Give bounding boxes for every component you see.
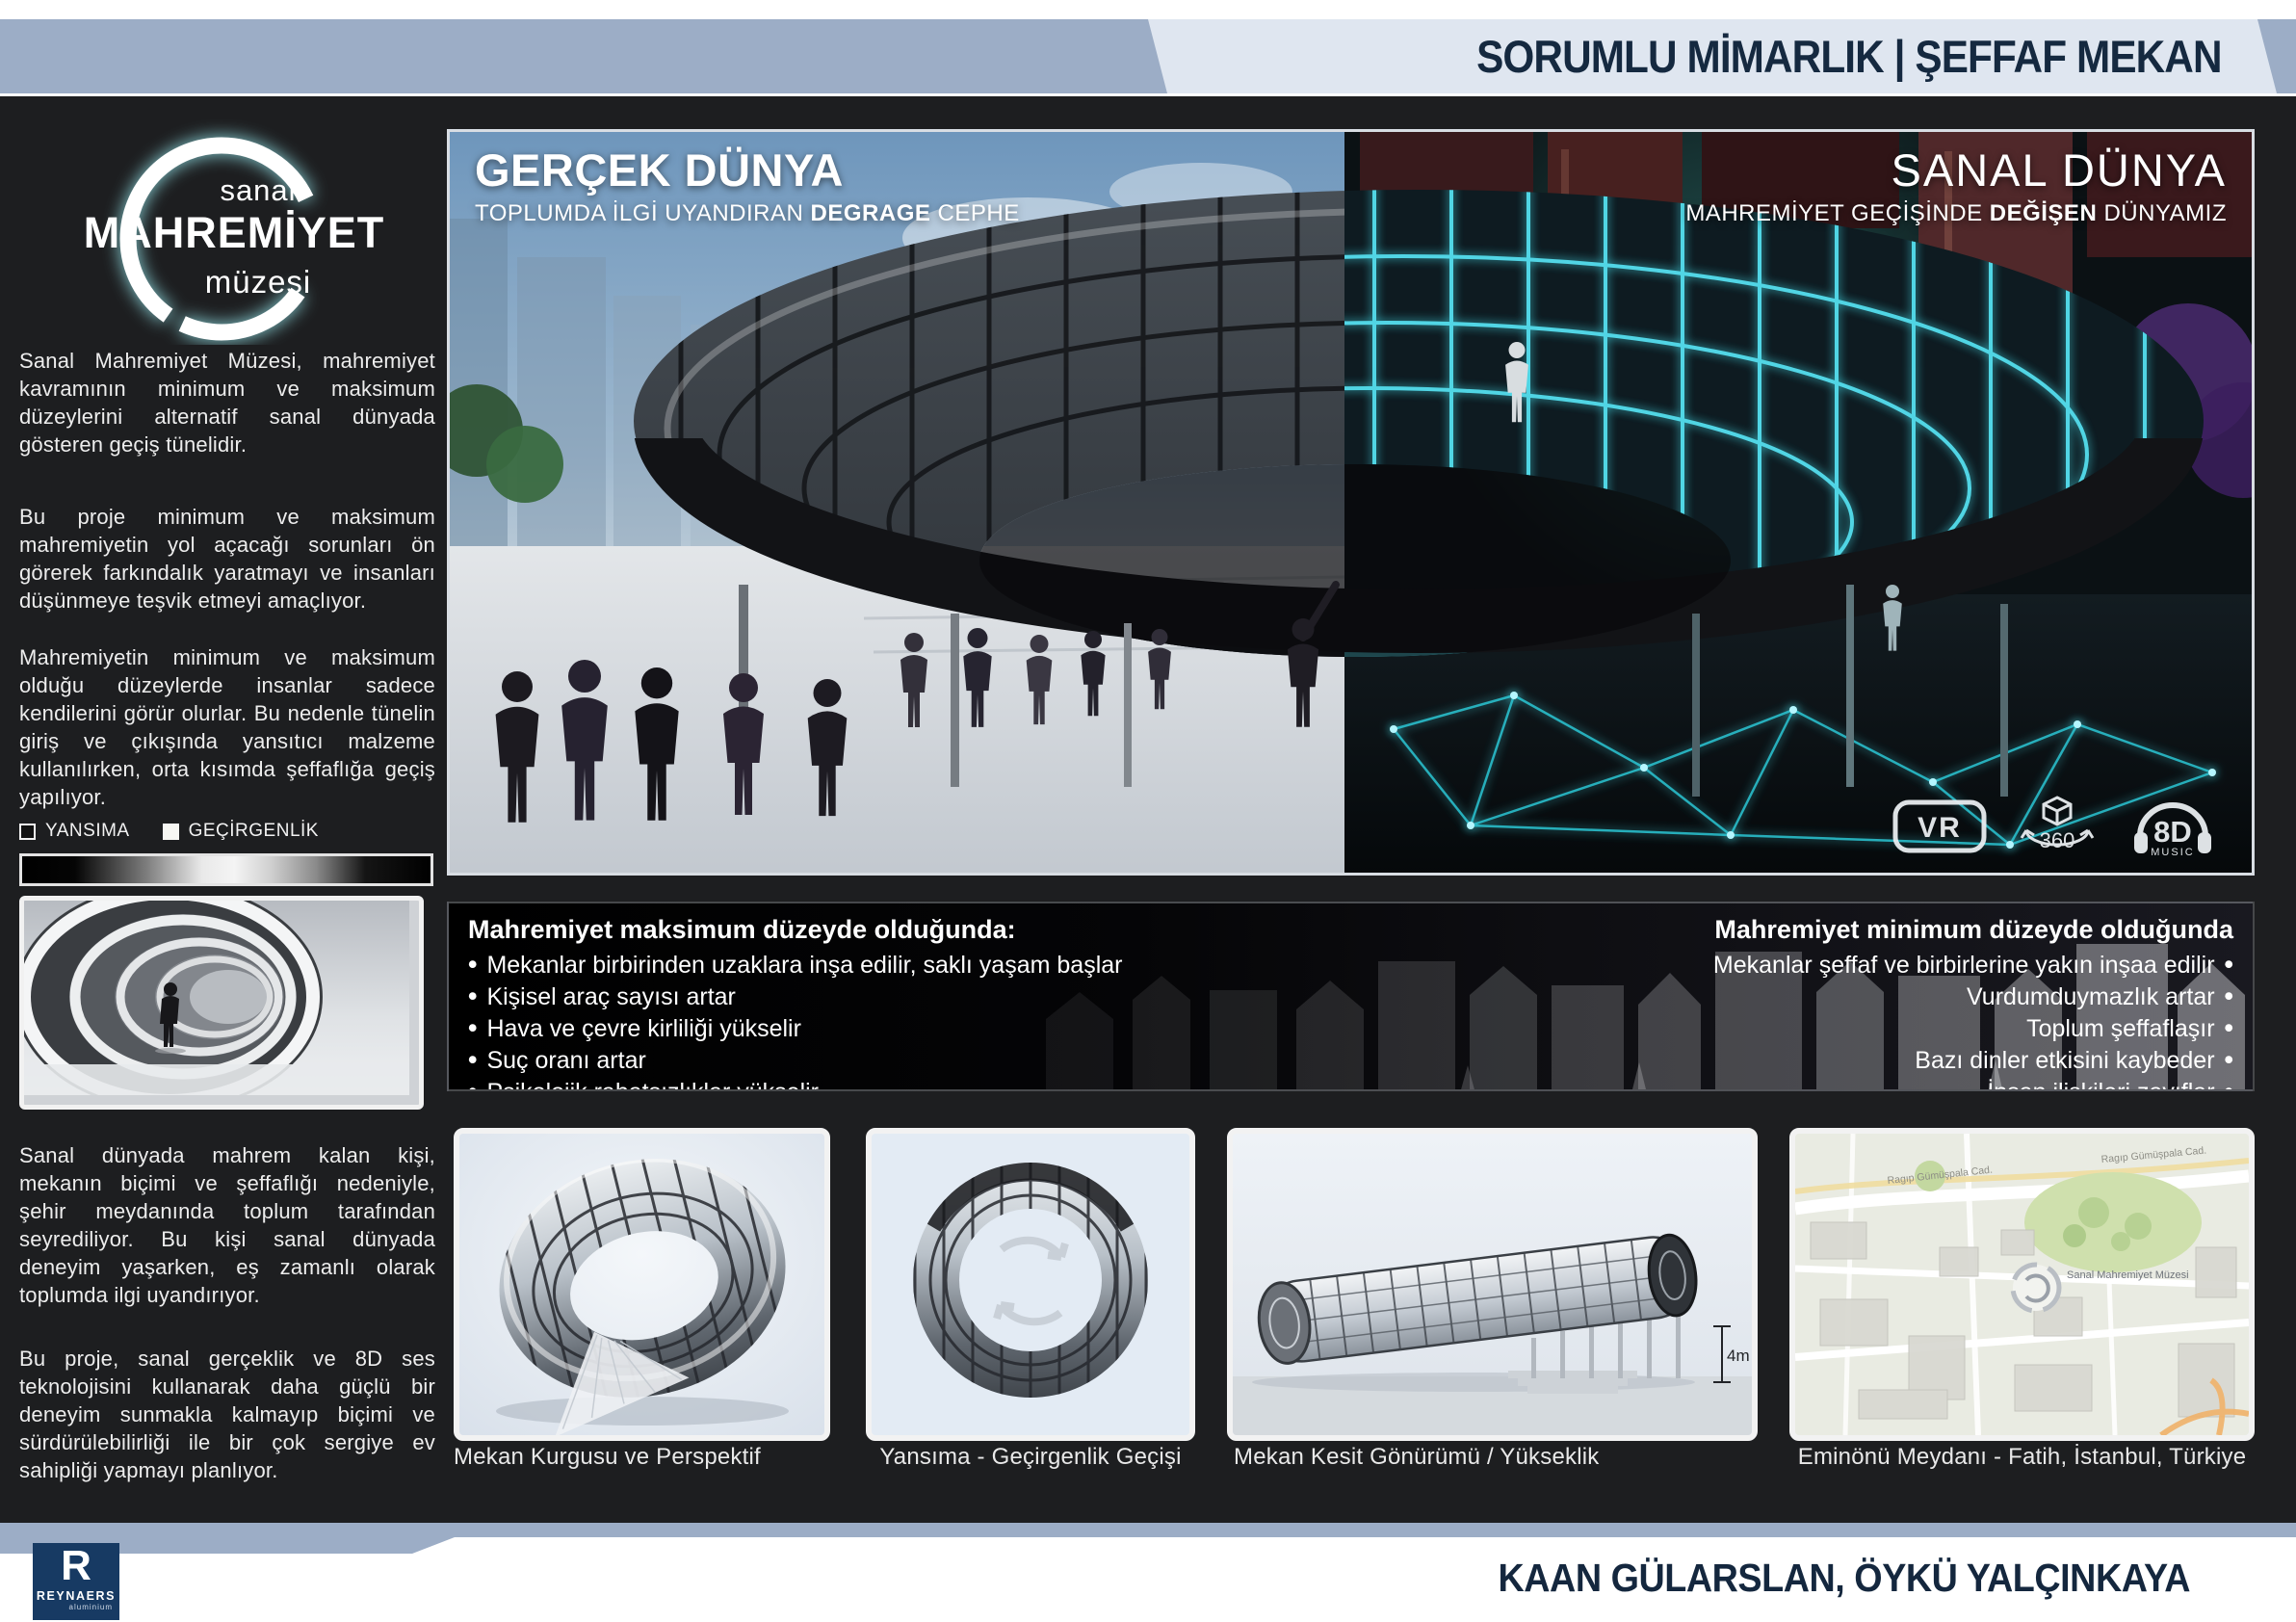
list-item: Mekanlar şeffaf ve birbirlerine yakın in… bbox=[1656, 949, 2233, 981]
title-panel: SORUMLU MİMARLIK | ŞEFFAF MEKAN bbox=[1117, 19, 2296, 93]
intro-paragraph-1: Sanal Mahremiyet Müzesi, mahremiyet kavr… bbox=[19, 347, 435, 458]
height-annotation: 4m bbox=[1727, 1347, 1750, 1365]
list-item: İnsan ilişkileri zayıflar• bbox=[1656, 1076, 2233, 1091]
hero-scene-art bbox=[450, 132, 2255, 876]
sidebar: sanal MAHREMİYET müzesi Sanal Mahremiyet… bbox=[19, 96, 435, 1523]
list-item: •Suç oranı artar bbox=[468, 1044, 1219, 1076]
poster-page: SORUMLU MİMARLIK | ŞEFFAF MEKAN sanal MA… bbox=[0, 0, 2296, 1622]
8d-music-icon: 8D MUSIC bbox=[2126, 794, 2219, 859]
list-item: Vurdumduymazlık artar• bbox=[1656, 981, 2233, 1012]
caption-transition: Yansıma - Geçirgenlik Geçişi bbox=[866, 1444, 1195, 1471]
tunnel-interior-image bbox=[19, 896, 424, 1110]
svg-text:360: 360 bbox=[2040, 828, 2075, 852]
virtual-world-title: SANAL DÜNYA bbox=[1685, 144, 2227, 196]
caption-perspective: Mekan Kurgusu ve Perspektif bbox=[454, 1444, 830, 1471]
torus-opening-shadow bbox=[979, 464, 1731, 657]
svg-text:MUSIC: MUSIC bbox=[2151, 847, 2194, 858]
podium-steps bbox=[1508, 1371, 1637, 1394]
privacy-min-list: Mahremiyet minimum düzeyde olduğunda Mek… bbox=[1656, 915, 2233, 1091]
gecirgenlik-swatch-icon bbox=[163, 824, 179, 840]
logo-line-3: müzesi bbox=[133, 264, 383, 301]
real-world-title: GERÇEK DÜNYA bbox=[475, 144, 1020, 196]
list-item: Toplum şeffaflaşır• bbox=[1656, 1012, 2233, 1044]
svg-text:8D: 8D bbox=[2153, 815, 2192, 849]
virtual-world-header: SANAL DÜNYA MAHREMİYET GEÇİŞİNDE DEĞİŞEN… bbox=[1685, 144, 2227, 227]
list-item: •Mekanlar birbirinden uzaklara inşa edil… bbox=[468, 949, 1219, 981]
poster-body: sanal MAHREMİYET müzesi Sanal Mahremiyet… bbox=[0, 93, 2296, 1523]
privacy-max-title: Mahremiyet maksimum düzeyde olduğunda: bbox=[468, 915, 1219, 945]
caption-location: Eminönü Meydanı - Fatih, İstanbul, Türki… bbox=[1789, 1444, 2255, 1471]
tunnel-interior-art bbox=[24, 901, 409, 1095]
list-item: •Hava ve çevre kirliliği yükselir bbox=[468, 1012, 1219, 1044]
svg-text:VR: VR bbox=[1918, 812, 1962, 844]
section-elevation-image: 4m bbox=[1227, 1128, 1758, 1441]
list-item: •Kişisel araç sayısı artar bbox=[468, 981, 1219, 1012]
outro-paragraph-2: Bu proje, sanal gerçeklik ve 8D ses tekn… bbox=[19, 1345, 435, 1484]
virtual-world-subtitle: MAHREMİYET GEÇİŞİNDE DEĞİŞEN DÜNYAMIZ bbox=[1685, 200, 2227, 227]
intro-paragraph-3: Mahremiyetin minimum ve maksimum olduğu … bbox=[19, 643, 435, 811]
authors-credit: KAAN GÜLARSLAN, ÖYKÜ YALÇINKAYA bbox=[1498, 1556, 2190, 1601]
reflection-transparency-gradient bbox=[19, 853, 433, 886]
legend-item-yansima: YANSIMA bbox=[19, 821, 130, 842]
conditions-band: Mahremiyet maksimum düzeyde olduğunda: •… bbox=[447, 902, 2255, 1091]
vr-icon: VR bbox=[1892, 796, 1988, 857]
logo-line-1: sanal bbox=[133, 173, 383, 208]
torus-perspective-image bbox=[454, 1128, 830, 1441]
hero-render: GERÇEK DÜNYA TOPLUMDA İLGİ UYANDIRAN DEG… bbox=[447, 129, 2255, 876]
legend-label: GEÇİRGENLİK bbox=[189, 821, 319, 842]
map-art: Sanal Mahremiyet Müzesi Ragıp Gümüşpala … bbox=[1795, 1134, 2249, 1435]
reynaers-r-icon: R bbox=[33, 1545, 119, 1587]
museum-marker-icon bbox=[2013, 1265, 2059, 1311]
intro-paragraph-2: Bu proje minimum ve maksimum mahremiyeti… bbox=[19, 503, 435, 615]
privacy-max-list: Mahremiyet maksimum düzeyde olduğunda: •… bbox=[468, 915, 1219, 1091]
360-icon: 360 bbox=[2013, 794, 2101, 859]
page-title: SORUMLU MİMARLIK | ŞEFFAF MEKAN bbox=[1235, 19, 2296, 93]
footer-band bbox=[0, 1523, 2296, 1554]
reynaers-logo: R REYNAERS aluminium bbox=[33, 1543, 119, 1620]
outro-paragraph-1: Sanal dünyada mahrem kalan kişi, mekanın… bbox=[19, 1141, 435, 1309]
site-map-image: Sanal Mahremiyet Müzesi Ragıp Gümüşpala … bbox=[1789, 1128, 2255, 1441]
map-label-museum: Sanal Mahremiyet Müzesi bbox=[2067, 1269, 2189, 1281]
privacy-min-title: Mahremiyet minimum düzeyde olduğunda bbox=[1656, 915, 2233, 945]
list-item: Bazı dinler etkisini kaybeder• bbox=[1656, 1044, 2233, 1076]
torus-front-art bbox=[872, 1134, 1189, 1435]
section-art: 4m bbox=[1233, 1134, 1752, 1435]
material-legend: YANSIMA GEÇİRGENLİK bbox=[19, 821, 435, 842]
museum-logo: sanal MAHREMİYET müzesi bbox=[19, 104, 435, 345]
real-world-header: GERÇEK DÜNYA TOPLUMDA İLGİ UYANDIRAN DEG… bbox=[475, 144, 1020, 227]
real-world-subtitle: TOPLUMDA İLGİ UYANDIRAN DEGRAGE CEPHE bbox=[475, 200, 1020, 227]
torus-front-view-image bbox=[866, 1128, 1195, 1441]
list-item: •Psikolojik rahatsızlıklar yükselir bbox=[468, 1076, 1219, 1091]
legend-label: YANSIMA bbox=[45, 821, 130, 842]
logo-line-2: MAHREMİYET bbox=[46, 208, 422, 258]
tech-badges: VR 360 8D MUSIC bbox=[1892, 794, 2219, 859]
yansima-swatch-icon bbox=[19, 824, 36, 840]
caption-section: Mekan Kesit Gönürümü / Yükseklik bbox=[1234, 1444, 1764, 1471]
legend-item-gecirgenlik: GEÇİRGENLİK bbox=[163, 821, 319, 842]
torus-perspective-art bbox=[459, 1134, 824, 1435]
